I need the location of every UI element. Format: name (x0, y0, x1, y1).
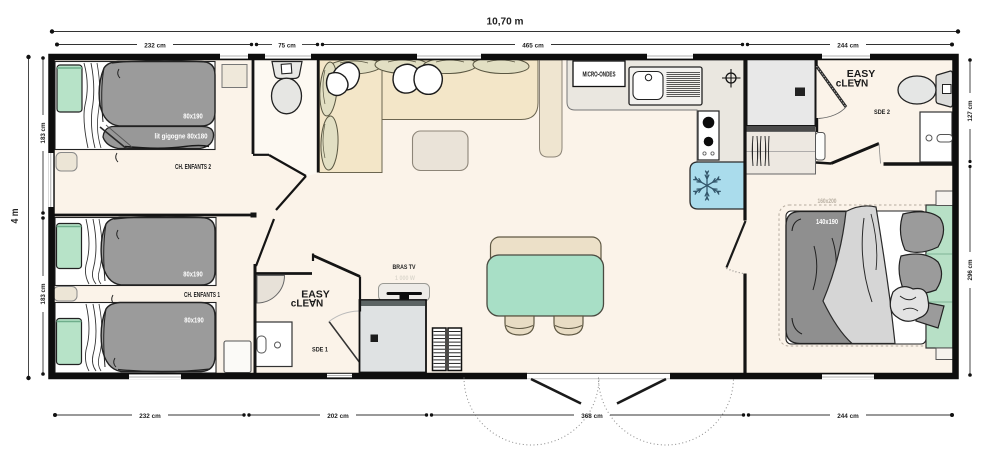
svg-text:75 cm: 75 cm (278, 43, 296, 50)
svg-text:80x190: 80x190 (184, 318, 204, 325)
svg-text:183 cm: 183 cm (41, 284, 47, 305)
svg-text:244 cm: 244 cm (837, 413, 859, 420)
svg-text:202 cm: 202 cm (327, 413, 349, 420)
svg-text:SDE 1: SDE 1 (312, 347, 328, 354)
svg-text:cLE∀N: cLE∀N (836, 79, 868, 90)
svg-text:cLE∀N: cLE∀N (291, 299, 323, 310)
svg-text:4 m: 4 m (10, 208, 21, 223)
svg-text:127 cm: 127 cm (968, 101, 974, 122)
svg-text:BRAS TV: BRAS TV (393, 264, 416, 271)
svg-text:244 cm: 244 cm (837, 43, 859, 50)
svg-text:465 cm: 465 cm (522, 43, 544, 50)
svg-text:80x190: 80x190 (183, 272, 203, 279)
svg-text:CH. ENFANTS 1: CH. ENFANTS 1 (184, 290, 220, 299)
svg-text:1 000 W: 1 000 W (395, 276, 415, 282)
svg-text:80x190: 80x190 (183, 114, 203, 121)
svg-text:232 cm: 232 cm (139, 413, 161, 420)
svg-text:368 cm: 368 cm (581, 413, 603, 420)
svg-text:CH. ENFANTS 2: CH. ENFANTS 2 (175, 162, 211, 171)
svg-text:232 cm: 232 cm (144, 43, 166, 50)
svg-text:160x200: 160x200 (818, 198, 837, 205)
svg-text:SDE 2: SDE 2 (874, 109, 890, 116)
svg-text:10,70 m: 10,70 m (487, 16, 524, 28)
svg-text:MICRO-ONDES: MICRO-ONDES (583, 70, 616, 79)
svg-text:183 cm: 183 cm (41, 123, 47, 144)
svg-text:296 cm: 296 cm (968, 260, 974, 281)
svg-text:140x190: 140x190 (816, 219, 838, 226)
svg-text:lit gigogne 80x180: lit gigogne 80x180 (155, 134, 208, 141)
